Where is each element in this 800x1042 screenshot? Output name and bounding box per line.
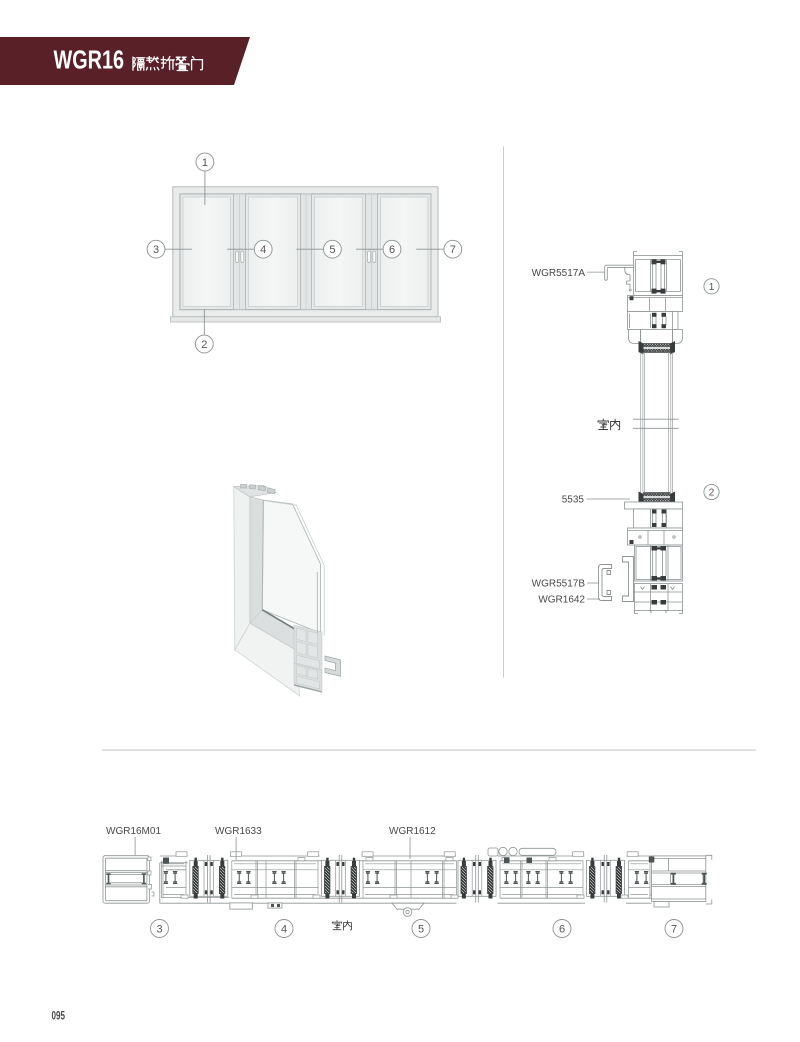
svg-text:WGR1612: WGR1612	[389, 826, 436, 837]
svg-text:WGR16: WGR16	[54, 47, 125, 75]
svg-text:2: 2	[201, 339, 207, 351]
svg-text:3: 3	[156, 924, 162, 936]
svg-text:5535: 5535	[562, 495, 585, 506]
svg-text:4: 4	[281, 924, 287, 936]
svg-text:1: 1	[202, 157, 208, 169]
svg-text:5: 5	[418, 924, 424, 936]
svg-text:6: 6	[559, 924, 565, 936]
svg-text:6: 6	[389, 244, 395, 256]
svg-text:7: 7	[450, 244, 456, 256]
svg-text:5: 5	[329, 244, 335, 256]
svg-text:095: 095	[52, 1009, 66, 1023]
svg-text:3: 3	[153, 244, 159, 256]
svg-text:2: 2	[709, 488, 715, 499]
svg-text:WGR5517A: WGR5517A	[532, 268, 586, 279]
svg-text:7: 7	[671, 924, 677, 936]
svg-text:WGR5517B: WGR5517B	[532, 579, 586, 590]
svg-text:WGR1633: WGR1633	[215, 826, 262, 837]
svg-text:1: 1	[709, 282, 715, 293]
svg-text:4: 4	[260, 244, 266, 256]
svg-text:WGR16M01: WGR16M01	[106, 826, 161, 837]
svg-text:WGR1642: WGR1642	[538, 595, 585, 606]
